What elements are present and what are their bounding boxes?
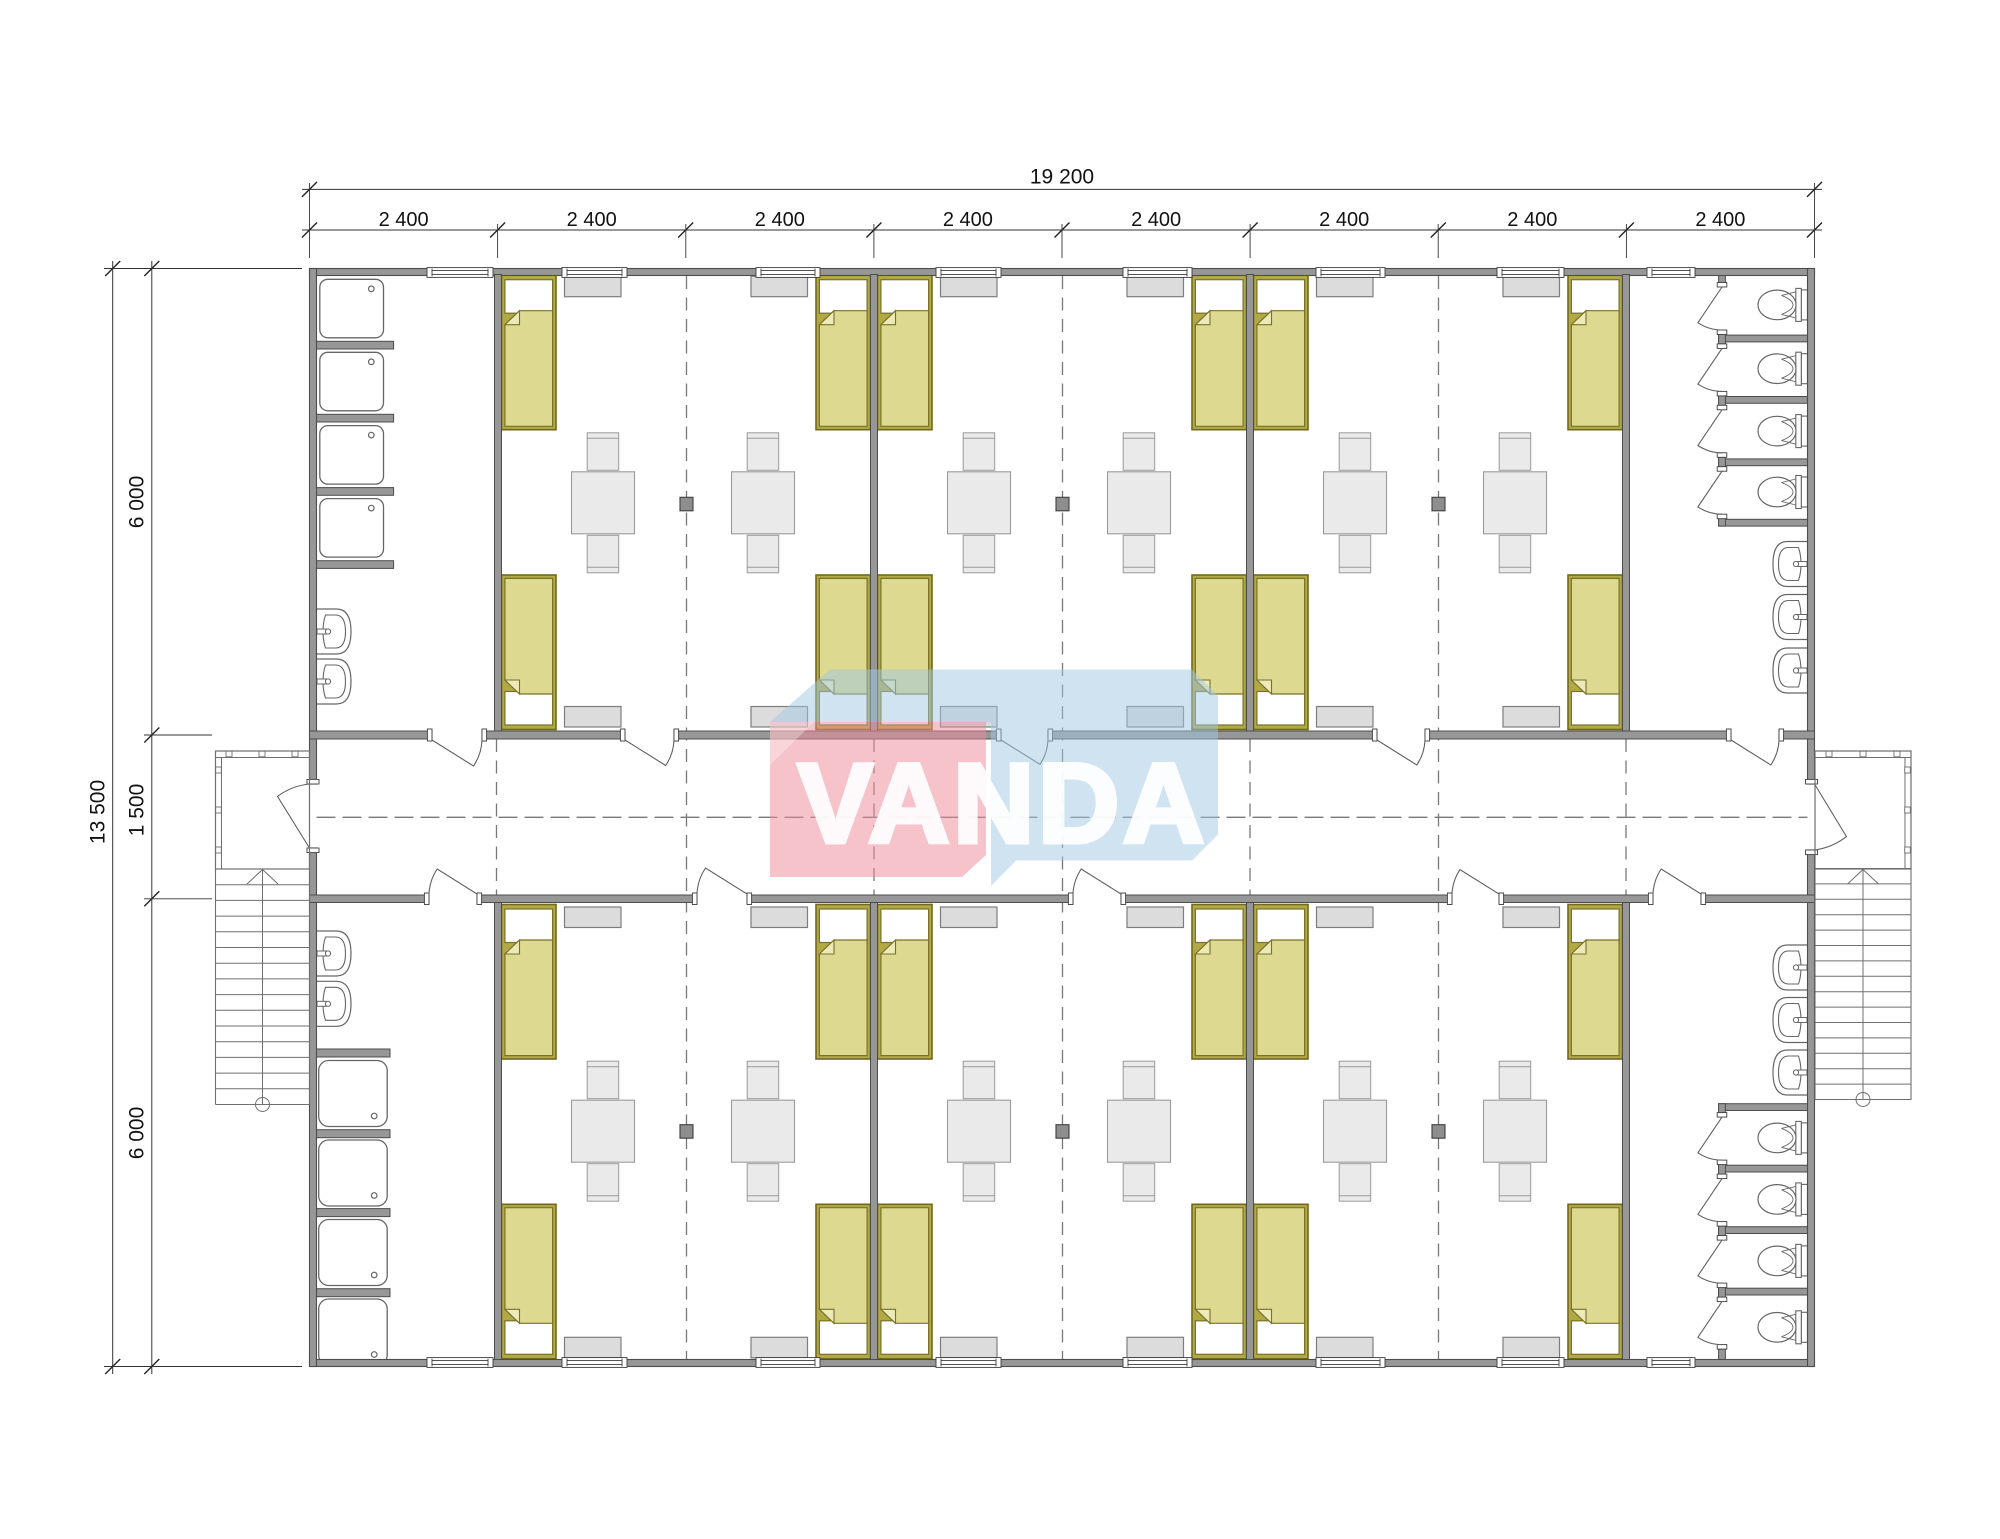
svg-text:2 400: 2 400 — [567, 209, 617, 231]
svg-text:2 400: 2 400 — [755, 209, 805, 231]
svg-text:19 200: 19 200 — [1030, 166, 1094, 189]
svg-text:2 400: 2 400 — [1131, 209, 1181, 231]
svg-text:6 000: 6 000 — [126, 1107, 149, 1160]
svg-text:VANDA: VANDA — [798, 741, 1208, 866]
svg-text:1 500: 1 500 — [126, 784, 149, 837]
svg-text:6 000: 6 000 — [126, 476, 149, 529]
svg-text:2 400: 2 400 — [1507, 209, 1557, 231]
svg-text:2 400: 2 400 — [1319, 209, 1369, 231]
svg-text:2 400: 2 400 — [943, 209, 993, 231]
svg-text:13 500: 13 500 — [87, 780, 110, 844]
svg-text:2 400: 2 400 — [379, 209, 429, 231]
svg-text:2 400: 2 400 — [1695, 209, 1745, 231]
